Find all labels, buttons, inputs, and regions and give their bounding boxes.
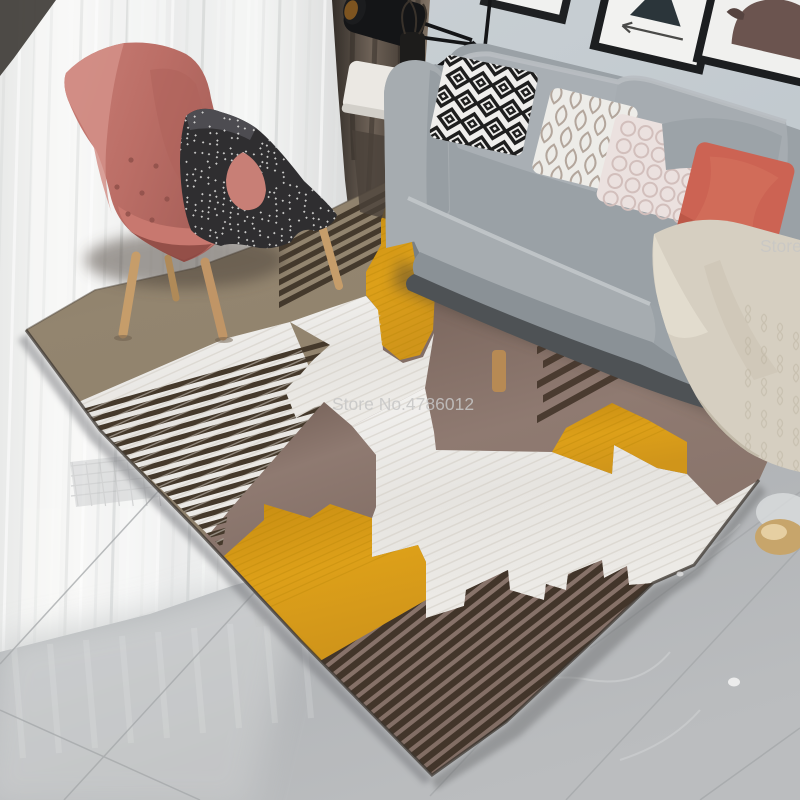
svg-text:Store No.4786012: Store No.4786012	[332, 394, 474, 414]
svg-text:Store N: Store N	[760, 236, 800, 256]
